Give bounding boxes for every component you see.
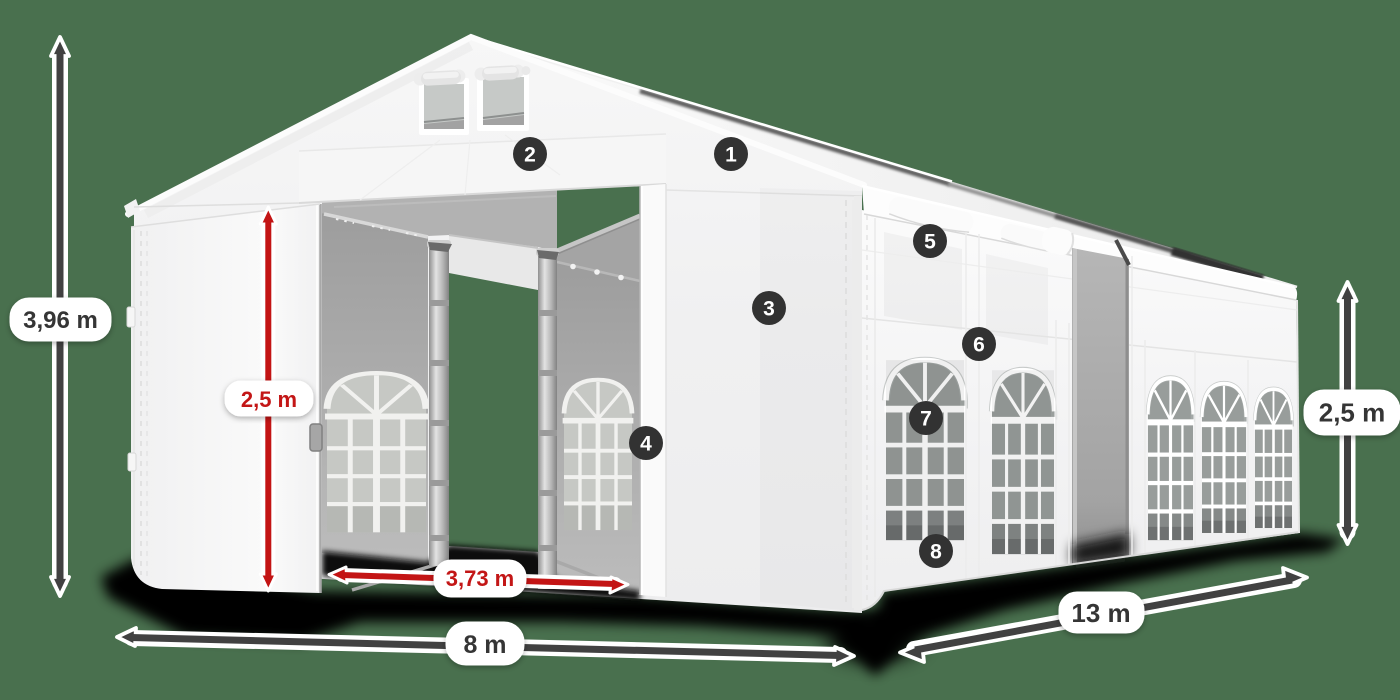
svg-text:13 m: 13 m — [1071, 598, 1130, 628]
svg-text:3,73 m: 3,73 m — [446, 566, 515, 591]
svg-text:1: 1 — [725, 144, 737, 167]
svg-text:3,96 m: 3,96 m — [23, 307, 98, 334]
svg-text:2,5 m: 2,5 m — [1319, 398, 1386, 428]
svg-text:5: 5 — [924, 231, 936, 254]
svg-text:6: 6 — [973, 334, 985, 357]
svg-text:8: 8 — [930, 541, 942, 564]
svg-text:7: 7 — [920, 408, 932, 431]
svg-text:3: 3 — [763, 298, 775, 321]
svg-text:2,5 m: 2,5 m — [241, 387, 297, 412]
svg-text:8 m: 8 m — [463, 631, 506, 659]
svg-text:2: 2 — [524, 144, 536, 167]
svg-text:4: 4 — [640, 433, 652, 456]
